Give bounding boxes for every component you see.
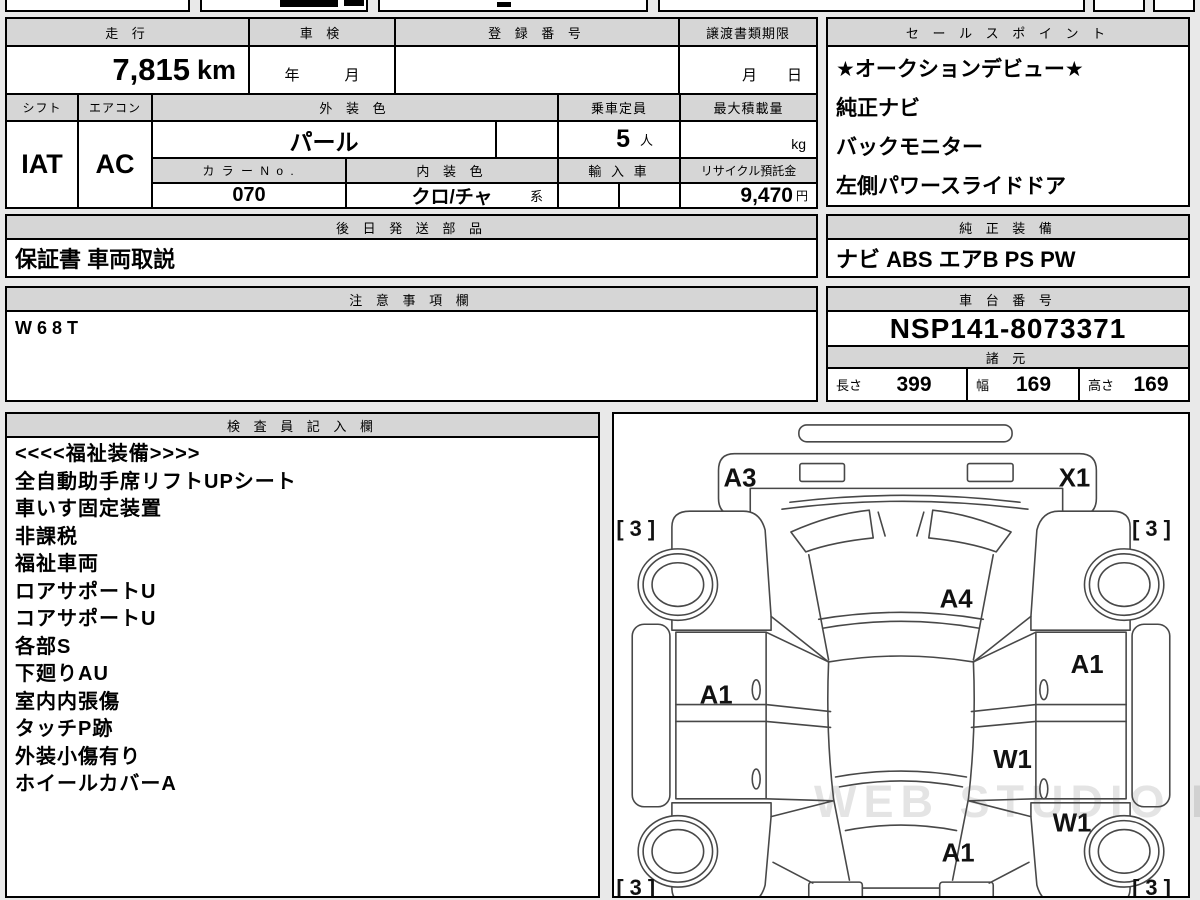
registration-value (394, 45, 680, 95)
width-label: 幅 (968, 375, 989, 394)
inspection-header: 車 検 (248, 17, 396, 47)
height-label: 高さ (1080, 375, 1114, 394)
transfer-docs-value: 月 日 (678, 45, 818, 95)
clipped-top-cell (1153, 0, 1195, 12)
spec-height-cell: 高さ 169 (1078, 367, 1190, 402)
spec-width-cell: 幅 169 (966, 367, 1080, 402)
inspector-note-line: 下廻りAU (15, 661, 590, 689)
notes-header: 注 意 事 項 欄 (5, 286, 818, 312)
panel-grade-label-a1-right: A1 (1071, 651, 1104, 679)
mileage-number: 7,815 (112, 52, 190, 88)
capacity-value: 5 人 (557, 120, 681, 159)
clipped-top-cell (5, 0, 190, 12)
inspector-note-line: タッチP跡 (15, 716, 590, 744)
length-label: 長さ (828, 375, 862, 394)
panel-grade-label-a1-rear: A1 (942, 839, 975, 867)
tire-depth-label-front-left: [ 3 ] (616, 516, 655, 541)
mileage-value: 7,815 km (5, 45, 250, 95)
clipped-text-fragment (344, 0, 364, 6)
width-value: 169 (989, 373, 1078, 397)
inspector-note-line: 車いす固定装置 (15, 496, 590, 524)
auction-sheet: 走 行 車 検 登 録 番 号 譲渡書類期限 7,815 km 年 月 月 日 … (0, 0, 1200, 900)
later-parts-value: 保証書 車両取説 (5, 238, 818, 278)
recycle-deposit-value: 9,470 円 (679, 182, 818, 209)
exterior-color-header: 外 装 色 (151, 93, 559, 122)
recycle-number: 9,470 (740, 184, 793, 208)
car-diagram-panel: A3 X1 [ 3 ] [ 3 ] A4 A1 A1 W1 W1 A1 [ 3 … (612, 412, 1190, 898)
panel-grade-label-a3: A3 (723, 464, 756, 492)
inspector-note-line: 福祉車両 (15, 551, 590, 579)
inspector-note-line: 室内内張傷 (15, 689, 590, 717)
height-value: 169 (1114, 373, 1188, 397)
tire-depth-label-front-right: [ 3 ] (1132, 516, 1171, 541)
aircon-value: AC (77, 120, 153, 209)
inspector-note-line: コアサポートU (15, 606, 590, 634)
clipped-text-fragment (280, 0, 338, 7)
recycle-deposit-header: リサイクル預託金 (679, 157, 818, 184)
panel-grade-label-x1: X1 (1059, 464, 1091, 492)
interior-color-value: クロ/チャ 系 (345, 182, 559, 209)
interior-color-header: 内 装 色 (345, 157, 559, 184)
chassis-number-header: 車 台 番 号 (826, 286, 1190, 312)
tire-depth-label-rear-right: [ 3 ] (1132, 875, 1171, 896)
sales-points-list: ★オークションデビュー★純正ナビバックモニター左側パワースライドドア (826, 45, 1190, 207)
capacity-unit: 人 (640, 130, 653, 149)
capacity-header: 乗車定員 (557, 93, 681, 122)
inspector-note-line: 非課税 (15, 524, 590, 552)
inspector-note-line: ロアサポートU (15, 579, 590, 607)
length-value: 399 (862, 373, 966, 397)
sales-point-item: バックモニター (836, 128, 1180, 167)
later-parts-header: 後 日 発 送 部 品 (5, 214, 818, 240)
transfer-docs-header: 譲渡書類期限 (678, 17, 818, 47)
genuine-equipment-header: 純 正 装 備 (826, 214, 1190, 240)
import-car-cell-2 (618, 182, 681, 209)
inspector-note-line: 外装小傷有り (15, 744, 590, 772)
notes-value: W68T (5, 310, 818, 402)
mileage-unit: km (197, 55, 236, 86)
max-load-header: 最大積載量 (679, 93, 818, 122)
exterior-color-value: パール (151, 120, 497, 159)
shift-header: シフト (5, 93, 79, 122)
exterior-color-extra-cell (495, 120, 559, 159)
inspector-note-line: <<<<福祉装備>>>> (15, 441, 590, 469)
spec-length-cell: 長さ 399 (826, 367, 968, 402)
tire-depth-label-rear-left: [ 3 ] (616, 875, 655, 896)
sales-point-item: ★オークションデビュー★ (836, 50, 1180, 89)
panel-grade-label-a1-left: A1 (700, 682, 733, 710)
panel-grade-label-w1-mid: W1 (993, 746, 1032, 774)
aircon-header: エアコン (77, 93, 153, 122)
panel-grade-label-a4: A4 (940, 585, 974, 613)
capacity-number: 5 (616, 125, 630, 154)
max-load-value: kg (679, 120, 818, 159)
recycle-unit: 円 (796, 187, 808, 204)
import-car-header: 輸 入 車 (557, 157, 681, 184)
color-no-header: カ ラ ー N o . (151, 157, 347, 184)
inspector-note-line: 全自動助手席リフトUPシート (15, 469, 590, 497)
interior-color-text: クロ/チャ (411, 182, 492, 209)
genuine-equipment-value: ナビ ABS エアB PS PW (826, 238, 1190, 278)
inspection-value: 年 月 (248, 45, 396, 95)
clipped-top-cell (378, 0, 648, 12)
clipped-top-cell (1093, 0, 1145, 12)
import-car-cell-1 (557, 182, 620, 209)
inspector-note-line: ホイールカバーA (15, 771, 590, 799)
sales-point-item: 左側パワースライドドア (836, 167, 1180, 206)
watermark-text: WEB STUDIO PRO (814, 776, 1200, 828)
color-no-value: 070 (151, 182, 347, 209)
inspector-notes-list: <<<<福祉装備>>>>全自動助手席リフトUPシート車いす固定装置非課税福祉車両… (5, 436, 600, 898)
mileage-header: 走 行 (5, 17, 250, 47)
sales-point-item: 純正ナビ (836, 89, 1180, 128)
interior-color-suffix: 系 (530, 186, 543, 205)
chassis-number-value: NSP141-8073371 (826, 310, 1190, 347)
inspector-note-line: 各部S (15, 634, 590, 662)
specs-header: 諸 元 (826, 345, 1190, 369)
clipped-text-fragment (497, 2, 511, 7)
sales-points-header: セ ー ル ス ポ イ ン ト (826, 17, 1190, 47)
registration-header: 登 録 番 号 (394, 17, 680, 47)
inspector-header: 検 査 員 記 入 欄 (5, 412, 600, 438)
shift-value: IAT (5, 120, 79, 209)
clipped-top-cell (658, 0, 1085, 12)
